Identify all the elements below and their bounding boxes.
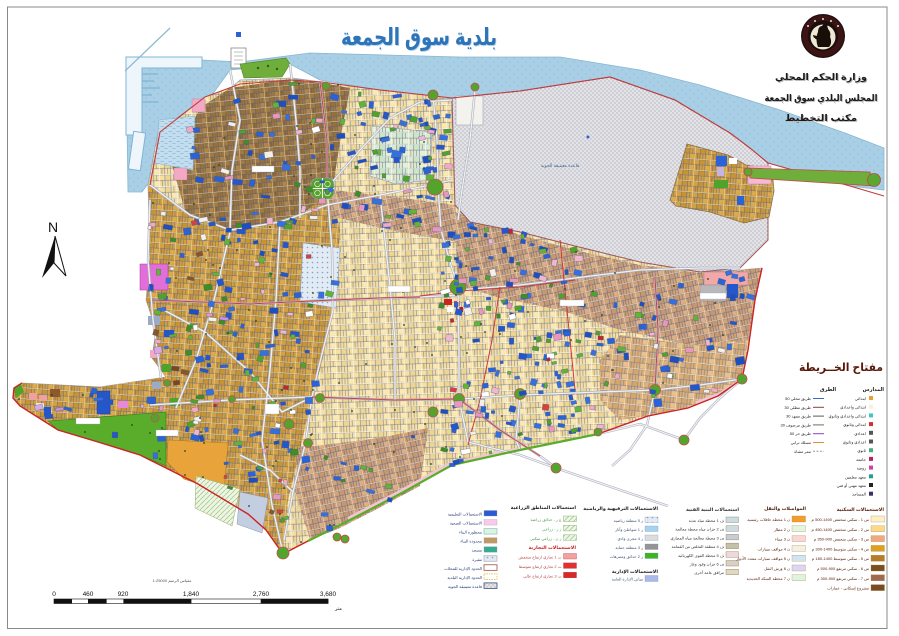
svg-text:ف 4 منطقة التخلص من القمامة: ف 4 منطقة التخلص من القمامة: [672, 544, 724, 549]
svg-text:ن 1 محطة حافلات رئيسية: ن 1 محطة حافلات رئيسية: [747, 517, 790, 522]
svg-text:مسجد: مسجد: [472, 548, 482, 553]
svg-text:2,760: 2,760: [253, 591, 270, 598]
svg-text:مقياس الرسم 1:25000: مقياس الرسم 1:25000: [153, 578, 192, 583]
svg-text:ت 1 تجاري ارتفاع منخفض: ت 1 تجاري ارتفاع منخفض: [518, 555, 561, 560]
svg-text:ر 2 حدائق ومتنزهات: ر 2 حدائق ومتنزهات: [610, 554, 644, 559]
svg-text:س 3 - سكني منخفض 900-350 م: س 3 - سكني منخفض 900-350 م: [814, 537, 869, 542]
svg-text:المساجد: المساجد: [852, 492, 866, 497]
svg-text:ابتدائي: ابتدائي: [855, 396, 866, 401]
svg-text:ثانوي: ثانوي: [857, 448, 866, 453]
svg-text:متر: متر: [334, 606, 342, 612]
svg-text:س 2 - سكني منخفض 1400-450 م: س 2 - سكني منخفض 1400-450 م: [812, 527, 870, 532]
svg-text:ابتدائي وثانوي: ابتدائي وثانوي: [843, 422, 866, 427]
svg-text:ف 5 محطة القوى الكهربائية: ف 5 محطة القوى الكهربائية: [678, 553, 724, 558]
svg-text:0: 0: [52, 591, 56, 598]
svg-text:ن 5 مواقف سيارات متعدد الأدوار: ن 5 مواقف سيارات متعدد الأدوار: [735, 556, 790, 561]
svg-text:س 5 - سكني متوسط 1400-180 م: س 5 - سكني متوسط 1400-180 م: [812, 556, 869, 561]
svg-text:روضة: روضة: [857, 466, 866, 471]
svg-text:920: 920: [118, 591, 129, 598]
svg-text:ابتدائي واعدادي وثانوي: ابتدائي واعدادي وثانوي: [829, 413, 866, 418]
svg-text:460: 460: [83, 591, 94, 598]
svg-text:ن 7 محطة السكة الحديدية: ن 7 محطة السكة الحديدية: [746, 576, 790, 581]
svg-text:جامعة: جامعة: [856, 457, 866, 462]
svg-text:ن 4 مواقف سيارات: ن 4 مواقف سيارات: [758, 546, 791, 551]
svg-text:س 4 - سكني متوسط 1400-300 م: س 4 - سكني متوسط 1400-300 م: [812, 546, 869, 551]
svg-text:ابتدائي واعدادي: ابتدائي واعدادي: [840, 405, 866, 410]
svg-text:الاستعمالات الترفيهية والرياضي: الاستعمالات الترفيهية والرياضية: [583, 506, 658, 512]
svg-text:مفتاح الخــريطة: مفتاح الخــريطة: [799, 362, 883, 374]
svg-text:مكتب التخطيط: مكتب التخطيط: [785, 113, 857, 124]
svg-text:ن 3 ميناء: ن 3 ميناء: [775, 537, 790, 542]
svg-text:معهد مهني أو فني: معهد مهني أو فني: [837, 483, 866, 488]
svg-text:استعمالات البنية الفنية: استعمالات البنية الفنية: [686, 507, 739, 513]
svg-text:المواصلات والنقل: المواصلات والنقل: [764, 506, 806, 512]
svg-text:مرافق عامة أخرى: مرافق عامة أخرى: [694, 570, 724, 575]
svg-text:طريق ممهد 30: طريق ممهد 30: [786, 414, 811, 419]
svg-text:قاعدة معيتيقة الجوية: قاعدة معيتيقة الجوية: [448, 584, 482, 589]
svg-text:الاستعمالات السكنية: الاستعمالات السكنية: [837, 507, 885, 513]
svg-text:ر 3 منطقة حماية: ر 3 منطقة حماية: [615, 545, 643, 550]
svg-text:الاستعمالات التجارية: الاستعمالات التجارية: [529, 545, 577, 551]
svg-text:مسلك ترابي: مسلك ترابي: [791, 440, 811, 445]
svg-text:ممر مشاة: ممر مشاة: [794, 449, 811, 454]
svg-text:طريق مطلي 30: طريق مطلي 30: [784, 405, 811, 410]
svg-text:محدودة البناء: محدودة البناء: [460, 539, 482, 544]
svg-text:ر 4 مجرى وادي: ر 4 مجرى وادي: [617, 536, 643, 541]
svg-text:معهد معلمين: معهد معلمين: [845, 474, 866, 479]
svg-text:ف 1 محطة مياه عذبة: ف 1 محطة مياه عذبة: [689, 518, 724, 523]
svg-text:ف 3 محطة معالجة مياه المجاري: ف 3 محطة معالجة مياه المجاري: [670, 535, 724, 540]
svg-text:الاستعمالات الصحية: الاستعمالات الصحية: [450, 521, 482, 526]
svg-text:الاستعمالات التعليمية: الاستعمالات التعليمية: [448, 512, 482, 517]
svg-text:اعدادي وثانوي: اعدادي وثانوي: [843, 440, 866, 445]
svg-text:س 1 - سكني منخفض 1400-500 م: س 1 - سكني منخفض 1400-500 م: [812, 517, 870, 522]
svg-text:المدارس: المدارس: [863, 387, 885, 393]
svg-text:س 6 - سكني مرتفع 900-500 م: س 6 - سكني مرتفع 900-500 م: [817, 566, 869, 571]
svg-text:ز ر - زراعي: ز ر - زراعي: [542, 526, 561, 531]
svg-text:الطرق: الطرق: [820, 387, 836, 393]
svg-text:طريق مرصوف 30: طريق مرصوف 30: [781, 422, 811, 427]
svg-text:1,840: 1,840: [183, 591, 200, 598]
svg-text:بلدية سوق الجمعة: بلدية سوق الجمعة: [341, 24, 497, 51]
svg-text:المجلس البلدي سوق الجمعة: المجلس البلدي سوق الجمعة: [765, 93, 878, 104]
svg-text:اعدادي: اعدادي: [854, 431, 866, 436]
svg-text:ر 5 منطقة رياضية: ر 5 منطقة رياضية: [614, 518, 643, 523]
svg-text:ن 2 مطار: ن 2 مطار: [773, 527, 790, 532]
svg-text:ز ن - زراعي سكني: ز ن - زراعي سكني: [530, 536, 562, 541]
svg-text:3,680: 3,680: [320, 591, 337, 598]
svg-text:استعمالات المناطق الزراعية: استعمالات المناطق الزراعية: [511, 505, 577, 511]
svg-text:ف 2 خزان مياه محطة معالجة: ف 2 خزان مياه محطة معالجة: [675, 527, 724, 532]
svg-text:ت 2 تجاري ارتفاع متوسط: ت 2 تجاري ارتفاع متوسط: [519, 564, 562, 569]
svg-text:ن 6 ورش النقل: ن 6 ورش النقل: [764, 566, 790, 571]
svg-text:طريق محلي 50: طريق محلي 50: [785, 396, 811, 401]
svg-text:ت 3 تجاري ارتفاع عالي: ت 3 تجاري ارتفاع عالي: [523, 573, 562, 578]
svg-text:مقبرة: مقبرة: [472, 557, 482, 562]
svg-text:قاعدة معيتيقة الجوية: قاعدة معيتيقة الجوية: [541, 163, 579, 168]
svg-text:الاستعمالات الإدارية: الاستعمالات الإدارية: [612, 569, 658, 575]
svg-text:وزارة الحكم المحلي: وزارة الحكم المحلي: [775, 72, 867, 83]
svg-text:N: N: [48, 219, 58, 235]
svg-text:طريق حر 50: طريق حر 50: [790, 431, 811, 436]
svg-text:ع ر - حدائق زراعية: ع ر - حدائق زراعية: [531, 517, 563, 522]
svg-text:ر 1 شواطئ وآثار: ر 1 شواطئ وآثار: [614, 527, 643, 532]
svg-text:محظورة البناء: محظورة البناء: [459, 530, 482, 535]
svg-text:ف 6 خزان وقود وغاز: ف 6 خزان وقود وغاز: [689, 562, 724, 567]
svg-text:س 7 - سكني مرتفع 900-300 م: س 7 - سكني مرتفع 900-300 م: [817, 576, 869, 581]
